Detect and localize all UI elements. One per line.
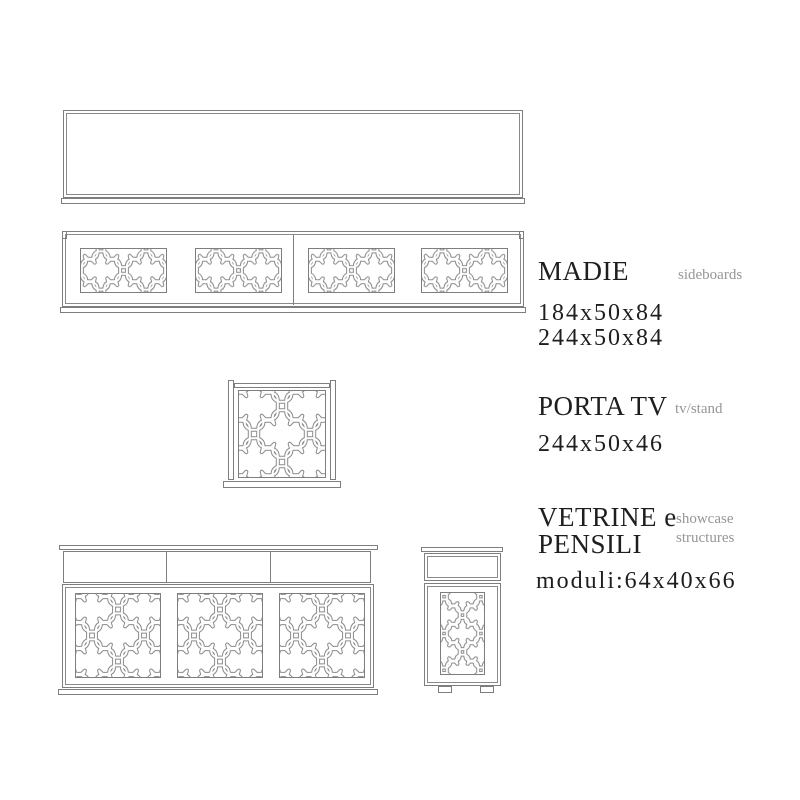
base-plinth xyxy=(60,307,526,313)
pattern-panel xyxy=(421,248,508,293)
section-subtitle-vetrine-line1: showcase xyxy=(676,510,733,528)
catalog-page: MADIE sideboards 184x50x84 244x50x84 POR… xyxy=(0,0,800,800)
drawer-band xyxy=(63,551,371,583)
foot xyxy=(438,686,452,693)
drawer-divider xyxy=(166,552,167,582)
drawer xyxy=(424,553,501,581)
side-rail xyxy=(228,380,234,480)
vetrine-dimensions: moduli:64x40x66 xyxy=(536,569,737,593)
top-board xyxy=(421,547,503,552)
foot xyxy=(480,686,494,693)
base-plinth xyxy=(223,481,341,488)
section-subtitle-madie: sideboards xyxy=(678,266,742,284)
madie-dimensions-1: 184x50x84 xyxy=(538,301,664,325)
pattern-panel xyxy=(80,248,167,293)
pattern-panel xyxy=(308,248,395,293)
pattern-panel xyxy=(177,593,263,678)
madie-dimensions-2: 244x50x84 xyxy=(538,326,664,350)
base-plinth xyxy=(61,198,525,204)
top-board xyxy=(59,545,378,550)
pattern-door xyxy=(238,390,326,478)
drawer-divider xyxy=(270,552,271,582)
cabinet-inner-line xyxy=(66,113,520,195)
section-subtitle-porta-tv: tv/stand xyxy=(675,400,723,418)
corner-cap xyxy=(519,231,524,239)
section-title-vetrine-line2: PENSILI xyxy=(538,530,642,560)
section-title-porta-tv: PORTA TV xyxy=(538,392,668,422)
pattern-panel xyxy=(279,593,365,678)
side-rail xyxy=(330,380,336,480)
top-board xyxy=(234,383,330,388)
section-title-madie: MADIE xyxy=(538,257,629,287)
pattern-panel xyxy=(440,592,485,675)
section-subtitle-vetrine-line2: structures xyxy=(676,529,734,547)
drawer-inner-line xyxy=(427,556,498,578)
center-divider xyxy=(293,235,294,305)
pattern-panel xyxy=(75,593,161,678)
corner-cap xyxy=(62,231,67,239)
pattern-panel xyxy=(195,248,282,293)
porta-tv-dimensions: 244x50x46 xyxy=(538,432,664,456)
base-plinth xyxy=(58,689,378,695)
cabinet-body xyxy=(63,110,523,198)
